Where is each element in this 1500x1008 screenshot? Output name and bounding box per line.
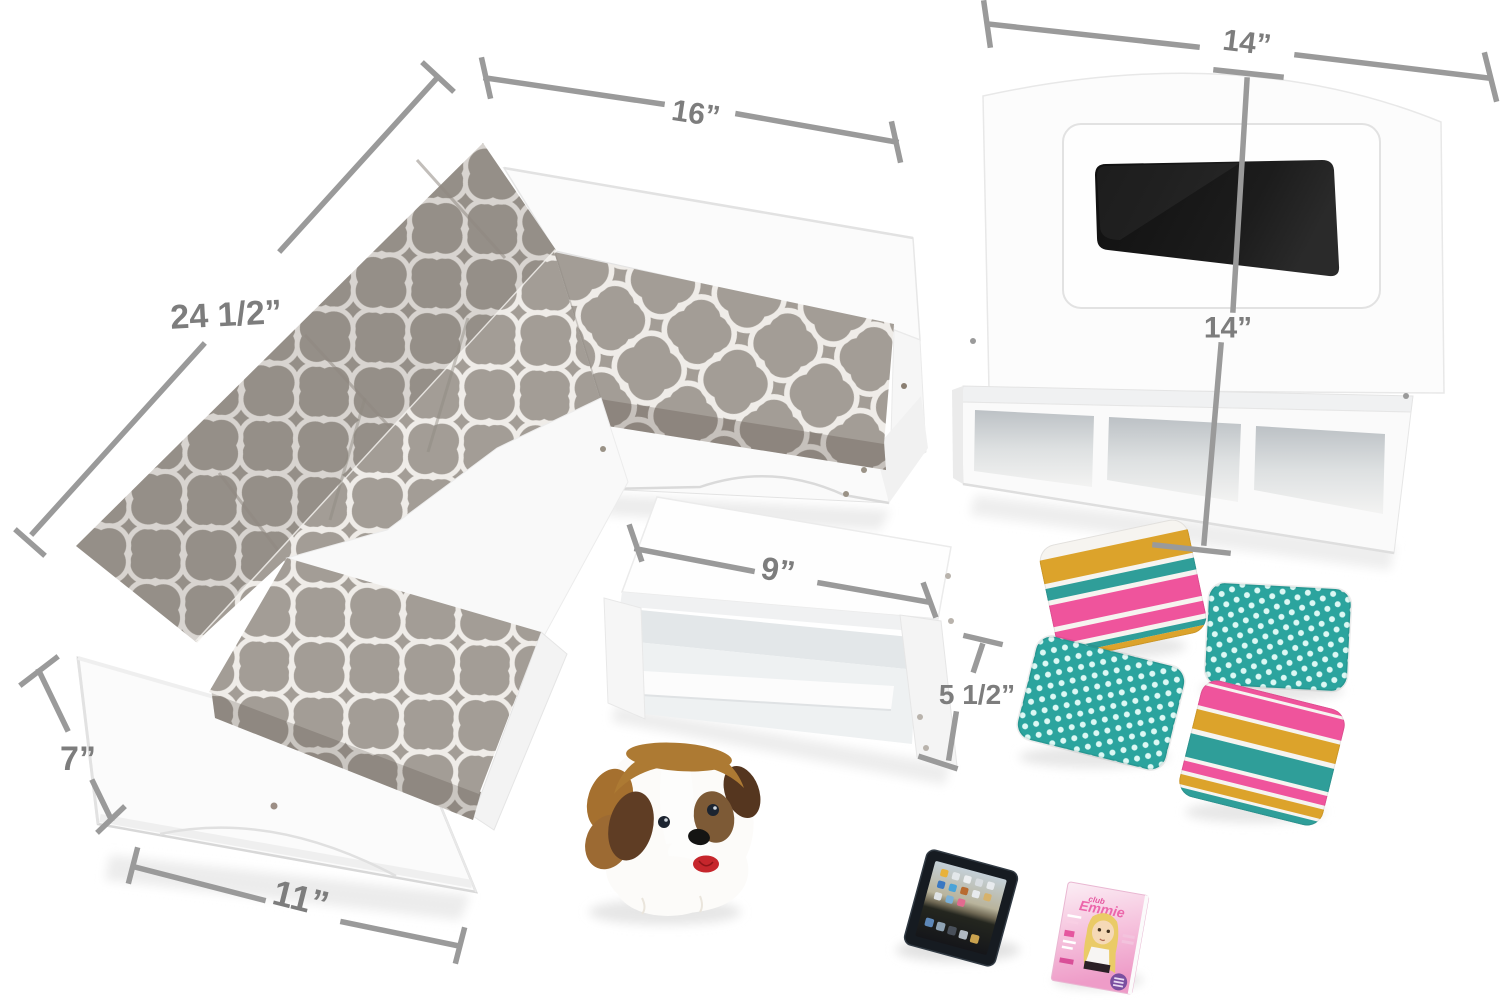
- svg-text:7”: 7”: [60, 740, 96, 778]
- svg-text:14”: 14”: [1204, 312, 1252, 345]
- svg-text:5 1/2”: 5 1/2”: [939, 679, 1015, 710]
- svg-text:9”: 9”: [758, 550, 797, 591]
- svg-text:24 1/2”: 24 1/2”: [169, 293, 282, 337]
- svg-text:14”: 14”: [1221, 24, 1273, 63]
